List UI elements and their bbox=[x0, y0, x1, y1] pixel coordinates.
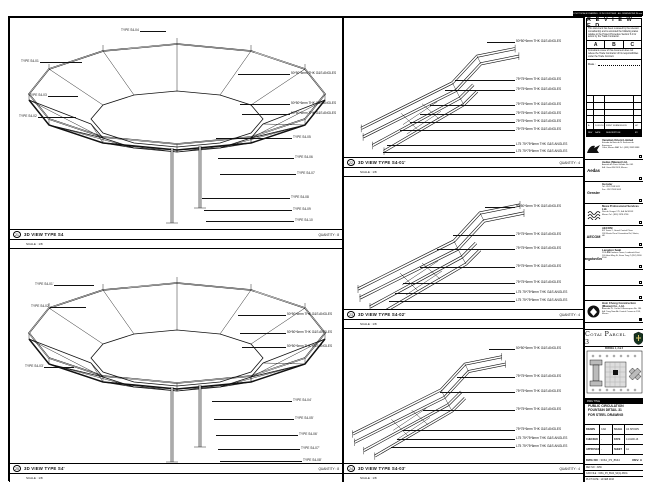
meca-waves-logo-icon bbox=[585, 204, 602, 225]
date-label: Date : bbox=[588, 62, 596, 66]
consultant-row-empty bbox=[585, 286, 643, 301]
review-checkbox bbox=[639, 281, 643, 285]
panel-scale-note: SCALE : 1/8 bbox=[343, 320, 584, 328]
canopy-wireframe-drawing bbox=[10, 249, 343, 465]
drawing-number-row: DWG NO : 315A_P3_8644 REV. A bbox=[585, 455, 643, 465]
tube-bundle-drawing bbox=[344, 329, 584, 465]
reviewed-paragraph-2: Consultant review of this document does … bbox=[587, 49, 641, 59]
panel-title: 3D VIEW TYPE S4-03' bbox=[358, 466, 406, 471]
consultant-row-langdonseah: LangdonSeah Langdon Seah23/F AIA Kowloon… bbox=[585, 248, 643, 270]
revision-table: A14.03.16FIRST SUBMISSIONHC REVDATEDESCR… bbox=[587, 95, 641, 136]
panel-quantity: QUANTITY : 8 bbox=[319, 233, 340, 237]
aecom-logo: AECOM bbox=[585, 226, 602, 247]
panel-scale-note: SCALE : 1/8 bbox=[343, 168, 584, 176]
dwg-no-value: 315A_P3_8644 bbox=[601, 458, 620, 462]
detail-number-bubble: 24 bbox=[347, 465, 355, 472]
consultant-row-empty bbox=[585, 270, 643, 286]
key-plan: PARCEL 1, 2 & 3 bbox=[585, 347, 643, 399]
review-checkbox bbox=[639, 243, 643, 247]
key-plan-drawing bbox=[586, 350, 643, 394]
screenshot-root: { "sheet": { "top_note": "DO NOT SCALE D… bbox=[0, 0, 650, 488]
panel-quantity: QUANTITY : 4 bbox=[560, 467, 581, 471]
review-status-row: A B C bbox=[587, 40, 641, 49]
project-name: Cotai Parcel 3 bbox=[585, 330, 631, 346]
dwg-no-label: DWG NO : bbox=[586, 458, 600, 462]
review-checkbox bbox=[639, 265, 643, 269]
reviewed-title: R E V I E W E D bbox=[587, 19, 641, 27]
dwg-title-line: FOR STEEL DRAWING bbox=[585, 413, 643, 417]
panel-scale-note: SCALE : 1/8 bbox=[9, 240, 343, 248]
panel-scale-note: SCALE : 1/8 bbox=[343, 474, 584, 482]
panel-title-bar: 23 3D VIEW TYPE S4-02' QUANTITY : 4 bbox=[344, 309, 583, 319]
project-name-row: Cotai Parcel 3 bbox=[585, 330, 643, 347]
contractor-row-hsinchong: Hsin Chong Construction (Macau) Co., Ltd… bbox=[585, 301, 643, 323]
review-checkbox bbox=[639, 221, 643, 225]
drawing-title-block: DWG TITLE PUBLIC CIRCULATION FOUNTAIN DE… bbox=[585, 399, 643, 425]
consultant-row-meca: Meca Professional Services Ltd.Rua de Xa… bbox=[585, 204, 643, 226]
panel-title-bar: 25 3D VIEW TYPE S4' QUANTITY : 8 bbox=[10, 463, 342, 473]
detail-number-bubble: 25 bbox=[13, 465, 21, 472]
detail-number-bubble: 23 bbox=[347, 311, 355, 318]
gensler-logo: Gensler bbox=[585, 182, 602, 203]
consultant-row-venetian: Venetian Orient LimitedEstrada da Baia d… bbox=[585, 138, 643, 160]
panel-3d-view-type-s4-01: 50*50*6mm THK G&S ANGLES75*75*6mm THK G&… bbox=[343, 17, 584, 168]
date-fill-line bbox=[598, 62, 640, 66]
panel-title-bar: 22 3D VIEW TYPE S4-01' QUANTITY : 4 bbox=[344, 157, 583, 167]
panel-3d-view-type-s4-03: 50*50*6mm THK G&S ANGLES75*75*6mm THK G&… bbox=[343, 328, 584, 474]
review-checkbox bbox=[639, 296, 643, 300]
info-row: APPROVED-SHEETA1 bbox=[585, 445, 643, 454]
plot-date-row: PLOT DATE : 14 FEB 2016 bbox=[585, 477, 643, 482]
panel-quantity: QUANTITY : 4 bbox=[560, 313, 581, 317]
review-checkbox bbox=[639, 155, 643, 159]
tube-bundle-drawing bbox=[344, 18, 584, 159]
panel-title: 3D VIEW TYPE S4' bbox=[24, 466, 65, 471]
revision-row-empty bbox=[587, 116, 641, 123]
project-title-bar: PROJECT TITLE bbox=[585, 323, 643, 330]
info-row: CHECKED-DATE14-MAR-16 bbox=[585, 435, 643, 445]
consultant-row-gensler: Gensler GenslerTel : 852 2598 9011Fax : … bbox=[585, 182, 643, 204]
detail-number-bubble: 21 bbox=[13, 231, 21, 238]
status-c: C bbox=[624, 41, 641, 48]
project-crest-icon bbox=[633, 331, 644, 345]
panel-3d-view-type-s4: TYPE S4-01TYPE S4-02TYPE S4-03TYPE S4-04… bbox=[9, 17, 343, 240]
canopy-wireframe-drawing bbox=[10, 18, 343, 230]
panel-title: 3D VIEW TYPE S4 bbox=[24, 232, 64, 237]
langdonseah-logo: LangdonSeah bbox=[585, 248, 602, 269]
panel-quantity: QUANTITY : 8 bbox=[319, 467, 340, 471]
revision-row-empty bbox=[587, 110, 641, 117]
aedas-logo: Aedas bbox=[585, 160, 602, 181]
venetian-lion-logo-icon bbox=[585, 138, 602, 159]
consultant-row-aedas: Aedas Aedas (Macau) Ltd.Avenida da Praia… bbox=[585, 160, 643, 182]
panel-scale-note: SCALE : 1/8 bbox=[9, 474, 343, 482]
info-row: DRAWNCADSCALEAS SHOWN bbox=[585, 425, 643, 435]
review-checkbox-checked bbox=[639, 318, 643, 322]
revision-row-empty bbox=[587, 103, 641, 110]
detail-number-bubble: 22 bbox=[347, 159, 355, 166]
do-not-scale-note: DO NOT SCALE DRAWING . IF IN DOUBT ASK .… bbox=[573, 11, 643, 16]
status-b: B bbox=[605, 41, 623, 48]
panel-quantity: QUANTITY : 4 bbox=[560, 161, 581, 165]
revision-row: A14.03.16FIRST SUBMISSIONHC bbox=[587, 123, 641, 130]
consultant-row-aecom: AECOM AECOM8/F Tower 2, Grand Central Pl… bbox=[585, 226, 643, 248]
panel-title-bar: 24 3D VIEW TYPE S4-03' QUANTITY : 4 bbox=[344, 463, 583, 473]
reviewed-stamp: R E V I E W E D This document has been r… bbox=[586, 18, 642, 137]
drawing-info-table: DRAWNCADSCALEAS SHOWN CHECKED-DATE14-MAR… bbox=[585, 425, 643, 455]
hsinchong-logo-icon bbox=[585, 301, 602, 322]
panel-3d-view-type-s4-02: 50*50*6mm THK G&S ANGLES75*75*6mm THK G&… bbox=[343, 176, 584, 320]
reviewed-paragraph-1: This document has been reviewed by the r… bbox=[587, 27, 641, 40]
revision-row-empty bbox=[587, 96, 641, 103]
review-date-row: Date : bbox=[587, 59, 641, 67]
tube-bundle-drawing bbox=[344, 177, 584, 311]
title-block: DO NOT SCALE DRAWING . IF IN DOUBT ASK .… bbox=[584, 17, 643, 482]
revision-table-header: REVDATEDESCRIPTIONBY bbox=[587, 130, 641, 136]
review-checkbox bbox=[639, 177, 643, 181]
panel-title-bar: 21 3D VIEW TYPE S4 QUANTITY : 8 bbox=[10, 229, 342, 239]
review-checkbox bbox=[639, 199, 643, 203]
drawing-sheet: TYPE S4-01TYPE S4-02TYPE S4-03TYPE S4-04… bbox=[8, 16, 642, 481]
panel-title: 3D VIEW TYPE S4-02' bbox=[358, 312, 406, 317]
revision-badge: REV. A bbox=[632, 458, 642, 462]
status-a: A bbox=[587, 41, 605, 48]
panel-title: 3D VIEW TYPE S4-01' bbox=[358, 160, 406, 165]
panel-3d-view-type-s4-prime: TYPE S4-01'TYPE S4-02'TYPE S4-03'50*50*6… bbox=[9, 248, 343, 474]
